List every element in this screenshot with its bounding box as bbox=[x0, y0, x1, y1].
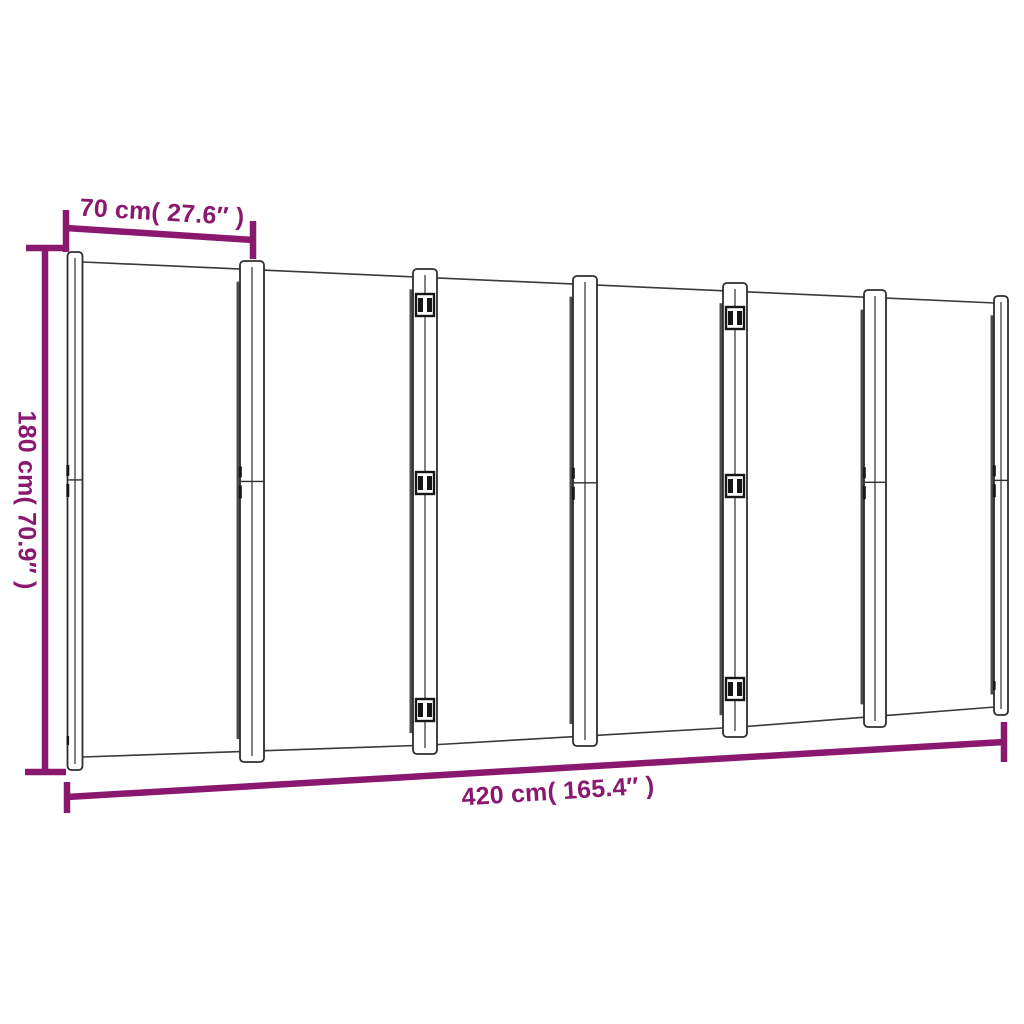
hinge-icon bbox=[416, 472, 434, 494]
post bbox=[238, 261, 264, 762]
post bbox=[66, 252, 82, 770]
hinge-icon bbox=[416, 294, 434, 316]
hinge-icon bbox=[726, 475, 744, 497]
divider-illustration bbox=[0, 0, 1024, 1024]
post bbox=[862, 290, 886, 727]
post bbox=[411, 269, 437, 754]
post bbox=[571, 276, 597, 746]
room-divider bbox=[66, 252, 1008, 770]
product-dimension-diagram: 70 cm( 27.6″ ) 180 cm( 70.9″ ) 420 cm( 1… bbox=[0, 0, 1024, 1024]
post bbox=[721, 283, 747, 737]
height-dimension-label: 180 cm( 70.9″ ) bbox=[12, 411, 41, 590]
hinge-icon bbox=[726, 678, 744, 700]
hinge-icon bbox=[416, 699, 434, 721]
post bbox=[992, 296, 1008, 715]
hinge-icon bbox=[726, 307, 744, 329]
